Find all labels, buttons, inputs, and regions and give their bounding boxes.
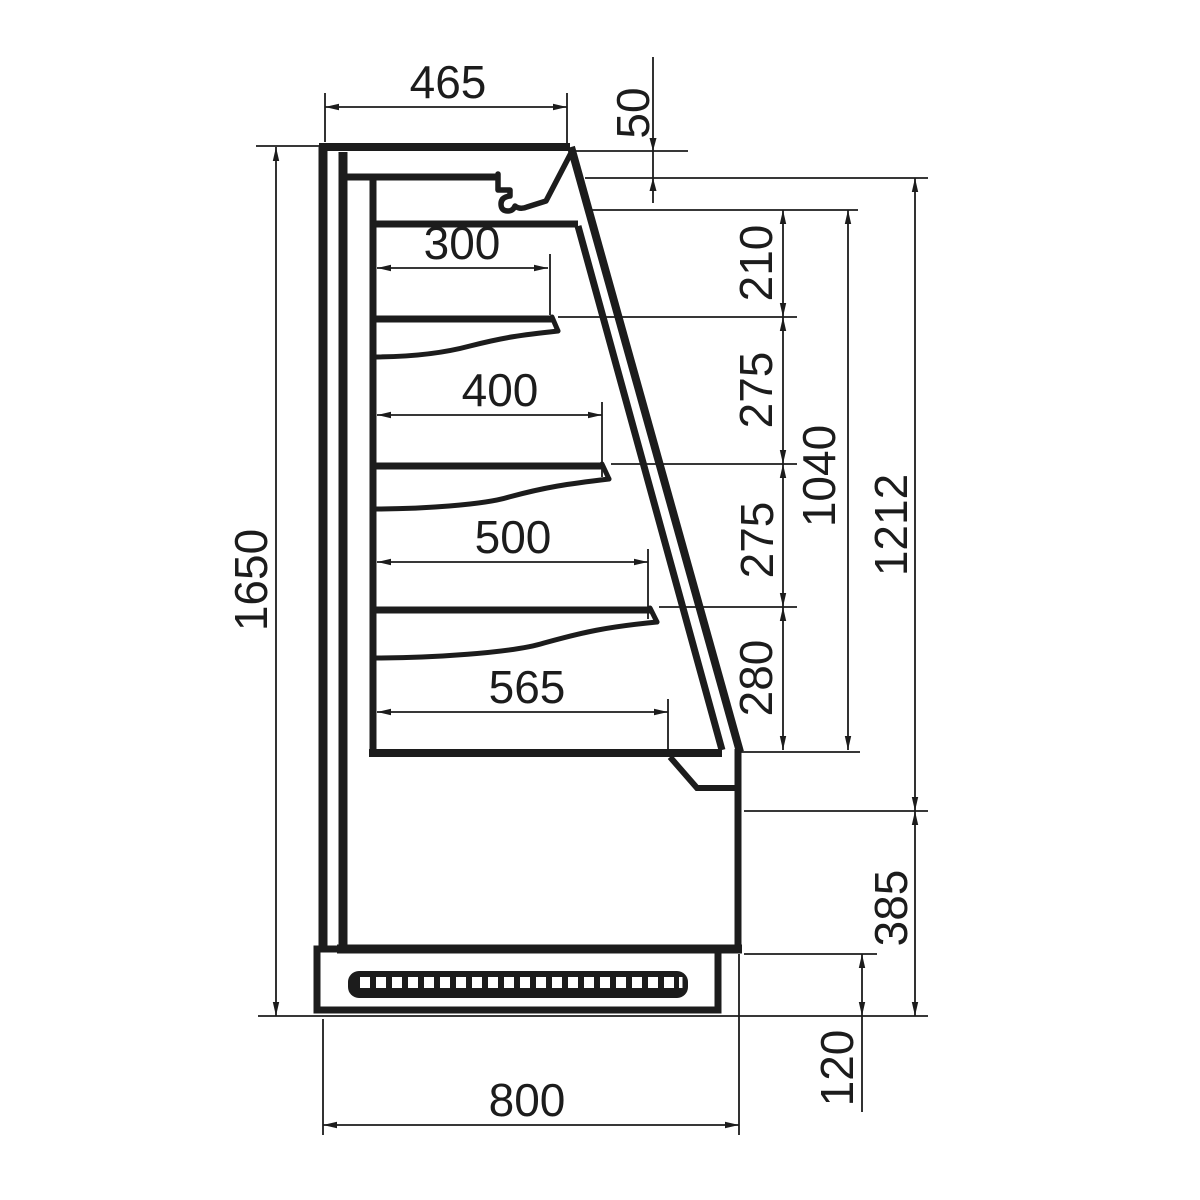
vent-grille-slot [472,977,482,988]
vent-grille-slot [616,977,626,988]
shelf-3 [372,608,657,658]
vent-grille-slot [408,977,418,988]
back-wall [323,147,373,949]
vent-grille-slot [536,977,546,988]
dimension-total-height: 1650 [225,147,277,1016]
dimension-lower-front-height: 385 [865,811,917,1016]
dimension-base-shelf-depth: 565 [377,661,668,755]
vent-grille-slot [456,977,466,988]
arrow-50-top [650,138,657,151]
technical-drawing-page: 465 50 300 400 500 565 [0,0,1200,1200]
plinth [317,949,718,1010]
shelf-3-underside-curve [372,622,657,658]
arrow-50-bottom [650,178,657,191]
vent-grille-slot [584,977,594,988]
vent-grille-slot [552,977,562,988]
dimension-top-depth: 465 [325,56,567,145]
vent-grille-partial-slot [679,977,683,988]
dim-label-canopy-front-height: 50 [607,87,659,138]
canopy [319,147,578,224]
front-glass [571,147,740,752]
base-well [337,749,742,951]
dim-label-opening-height: 1212 [865,474,917,576]
vent-grille-slot [568,977,578,988]
shelf-2-underside-curve [372,479,609,509]
vent-grille-slot [440,977,450,988]
air-duct-profile [498,153,571,211]
dimension-shelf-3-depth: 500 [377,511,648,619]
vent-grille-slot [600,977,610,988]
vent-grille [348,971,688,998]
dim-label-shelf-2-depth: 400 [462,364,539,416]
shelf-2 [372,464,609,509]
vent-grille-slot [520,977,530,988]
vent-grille-slot [632,977,642,988]
dim-label-plinth-height: 120 [811,1030,863,1107]
front-recess-notch [670,757,736,788]
cabinet-structure [317,147,742,1010]
dimension-opening-height: 1212 [865,178,917,811]
vent-grille-slot [424,977,434,988]
dimension-shelf-spacing-chain: 210 275 275 280 [730,210,783,750]
dim-label-shelf-3-depth: 500 [475,511,552,563]
dim-label-shelf-3-to-base: 280 [730,640,782,717]
vent-grille-slot [504,977,514,988]
dim-label-ceiling-to-shelf-1: 210 [730,225,782,302]
dim-label-shelf-1-depth: 300 [424,217,501,269]
dimension-shelf-2-depth: 400 [377,364,602,477]
dim-label-top-depth: 465 [410,56,487,108]
cabinet-section-drawing: 465 50 300 400 500 565 [0,0,1200,1200]
dimension-interior-height: 1040 [793,210,848,750]
vent-grille-slot [648,977,658,988]
vent-grille-slot [376,977,386,988]
vent-grille-slot [392,977,402,988]
dim-label-shelf-1-to-shelf-2: 275 [730,352,782,429]
front-glass-inner-line [578,226,722,750]
dim-label-base-shelf-depth: 565 [489,661,566,713]
shelf-1-underside-curve [372,331,558,357]
dim-label-interior-height: 1040 [793,425,845,527]
dimension-plinth-height: 120 [811,954,863,1112]
vent-grille-slot [360,977,370,988]
dimension-shelf-1-depth: 300 [377,217,550,315]
dim-label-lower-front-height: 385 [865,870,917,947]
dim-label-shelf-2-to-shelf-3: 275 [731,502,783,579]
vent-grille-slot [488,977,498,988]
dimension-canopy-front-height: 50 [607,57,659,203]
vent-grille-slot [664,977,674,988]
shelf-1 [372,317,558,357]
dim-label-total-depth: 800 [489,1074,566,1126]
front-glass-outer-line [571,147,740,752]
dim-label-total-height: 1650 [225,529,277,631]
